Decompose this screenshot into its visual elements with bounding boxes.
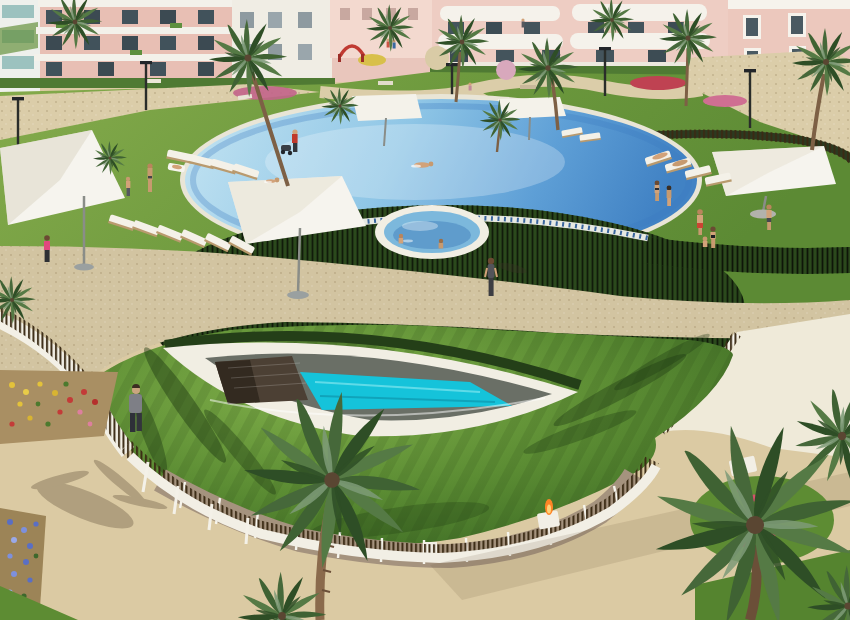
flower-bed-yellow-red (0, 370, 118, 444)
balcony-slab (34, 54, 234, 61)
teal-window (2, 56, 34, 69)
window (340, 8, 350, 20)
render-canvas (0, 0, 850, 620)
bench (378, 81, 393, 85)
balcony-hedge (170, 23, 182, 28)
flower-patch-red (630, 76, 686, 90)
window (362, 8, 372, 20)
window (408, 8, 418, 20)
kids-round-pool (375, 205, 489, 259)
balcony-hedge (130, 50, 142, 55)
sand-circle (425, 46, 449, 70)
bench (146, 79, 161, 83)
flower-patch-pink (703, 95, 747, 107)
balcony-slab (38, 0, 234, 7)
play-circle (496, 60, 516, 80)
bench (520, 85, 536, 89)
person-pink (44, 235, 50, 262)
teal-window (2, 5, 34, 18)
